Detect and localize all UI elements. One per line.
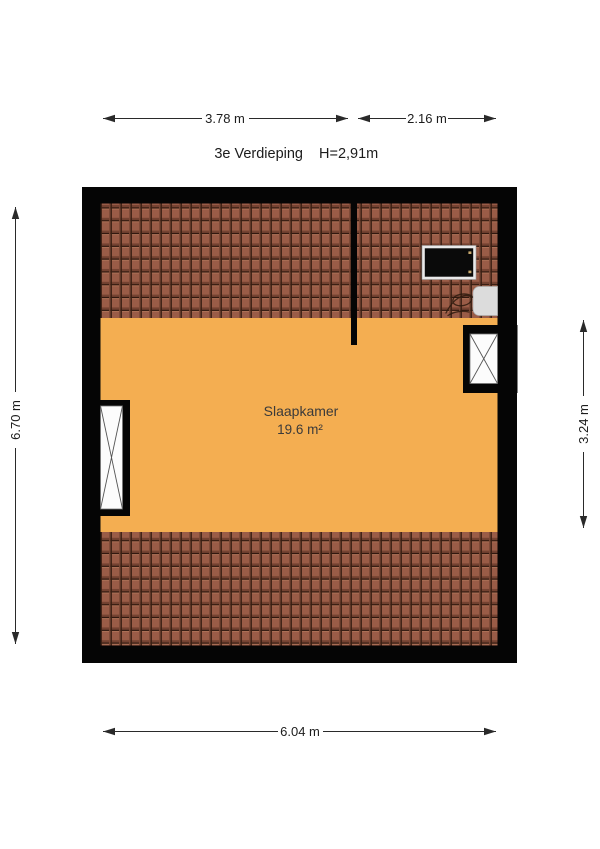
room-area-label: 19.6 m² — [277, 422, 323, 437]
skylight-hinge-bottom — [468, 271, 471, 274]
dimension-right-label: 3.24 m — [576, 404, 591, 444]
dimension-top-left-label: 3.78 m — [205, 111, 245, 126]
window-left-icon — [82, 400, 130, 516]
ceiling-height-label: H=2,91m — [319, 146, 378, 162]
dimension-left-label: 6.70 m — [8, 400, 23, 440]
dimension-bottom: 6.04 m — [103, 724, 496, 739]
dimension-right: 3.24 m — [576, 320, 591, 528]
divider-wall — [351, 204, 357, 346]
floorplan-canvas: 3e Verdieping H=2,91m Slaapkamer 19.6 m² — [0, 0, 600, 849]
dimension-top-left: 3.78 m — [103, 111, 348, 126]
roof-area-bottom — [101, 532, 498, 646]
window-right-icon — [463, 325, 518, 393]
skylight-glass — [425, 248, 473, 276]
skylight-window-icon — [422, 246, 476, 280]
dimension-left: 6.70 m — [8, 207, 23, 644]
plan-title: 3e Verdieping H=2,91m — [214, 146, 378, 162]
floorplan-page: 3e Verdieping H=2,91m Slaapkamer 19.6 m² — [0, 0, 600, 849]
gray-fixture — [473, 287, 498, 316]
skylight-hinge-top — [468, 251, 471, 254]
floor-title-label: 3e Verdieping — [214, 146, 303, 162]
dimension-top-right-label: 2.16 m — [407, 111, 447, 126]
room-name-label: Slaapkamer — [264, 403, 339, 419]
dimension-top-right: 2.16 m — [358, 111, 496, 126]
dimension-bottom-label: 6.04 m — [280, 724, 320, 739]
